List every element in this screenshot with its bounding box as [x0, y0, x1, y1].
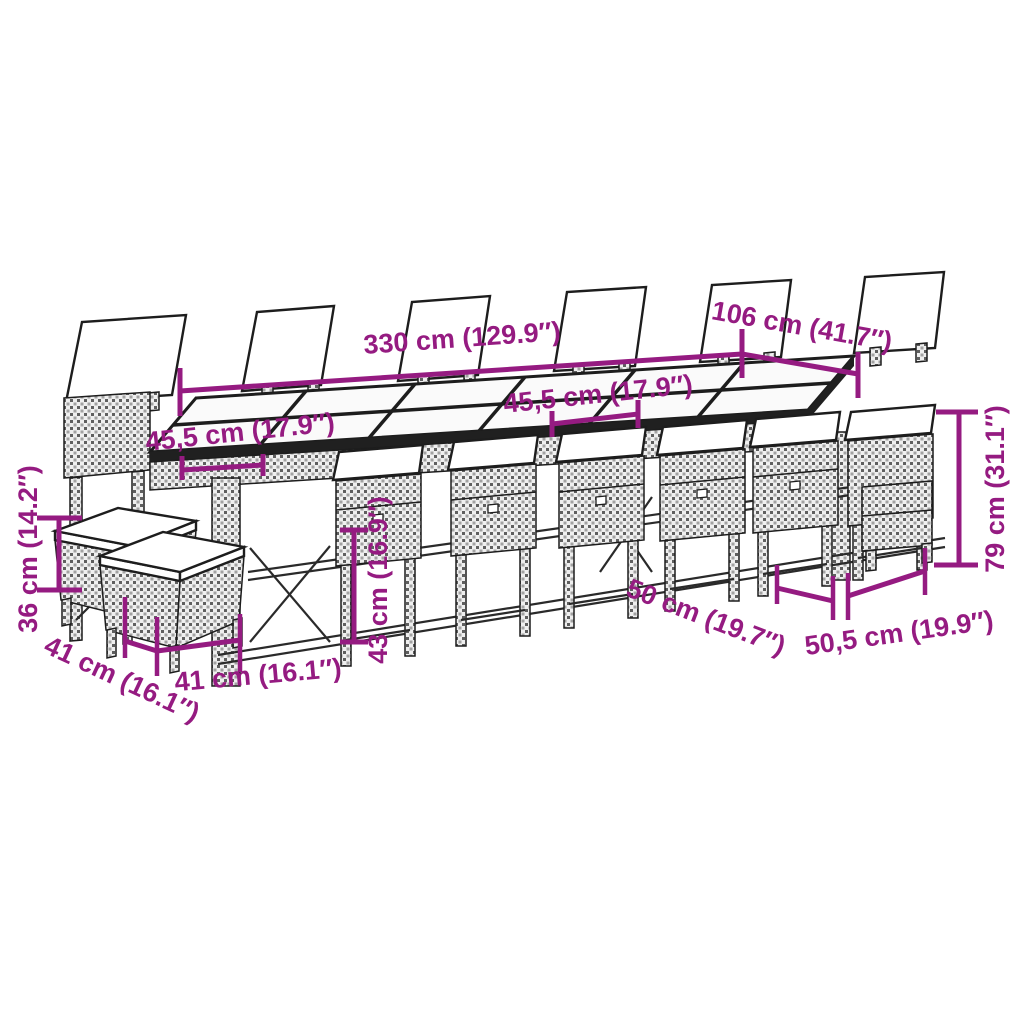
- dimension-diagram: 330 cm (129.9″) 106 cm (41.7″) 45,5 cm (…: [0, 0, 1024, 1024]
- dim-stool-height-label: 36 cm (14.2″): [13, 465, 43, 633]
- chair-cushion: [333, 445, 423, 480]
- chair-leg: [405, 558, 415, 656]
- chair-leg: [729, 533, 739, 601]
- chair-buckle: [697, 489, 707, 498]
- near-chair: [657, 420, 747, 611]
- diagram-canvas: 330 cm (129.9″) 106 cm (41.7″) 45,5 cm (…: [0, 0, 1024, 1024]
- chair-buckle: [790, 481, 800, 490]
- chair-buckle: [596, 496, 606, 505]
- near-chair: [750, 412, 840, 596]
- chair-backrest: [242, 306, 334, 391]
- chair-seat-body: [862, 481, 932, 551]
- chair-leg: [866, 550, 876, 571]
- near-chair: [448, 435, 538, 646]
- chair-cushion: [448, 435, 538, 470]
- stool-leg: [107, 628, 116, 658]
- chair-cushion: [845, 405, 935, 440]
- chair-cushion: [556, 427, 646, 462]
- chair-backrest: [554, 287, 646, 371]
- right-end-chair: [862, 481, 932, 571]
- dim-stool-width-label: 41 cm (16.1″): [173, 653, 343, 697]
- stool-leg: [62, 598, 71, 626]
- dim-seat-height-label: 43 cm (16.9″): [363, 496, 393, 664]
- chair-cushion: [657, 420, 747, 455]
- chair-cushion: [750, 412, 840, 447]
- dim-chair-depth-line: [777, 588, 833, 601]
- backrest-post: [916, 343, 927, 362]
- chair-back-panel: [64, 392, 150, 478]
- chair-leg: [564, 546, 574, 628]
- chair-buckle: [488, 504, 498, 513]
- chair-leg: [822, 525, 832, 586]
- chair-backrest: [66, 315, 186, 402]
- chair-leg: [758, 531, 768, 596]
- chair-leg: [341, 564, 351, 666]
- chair-leg: [456, 554, 466, 646]
- dim-chair-height-label: 79 cm (31.1″): [980, 405, 1010, 573]
- chair-leg: [520, 548, 530, 636]
